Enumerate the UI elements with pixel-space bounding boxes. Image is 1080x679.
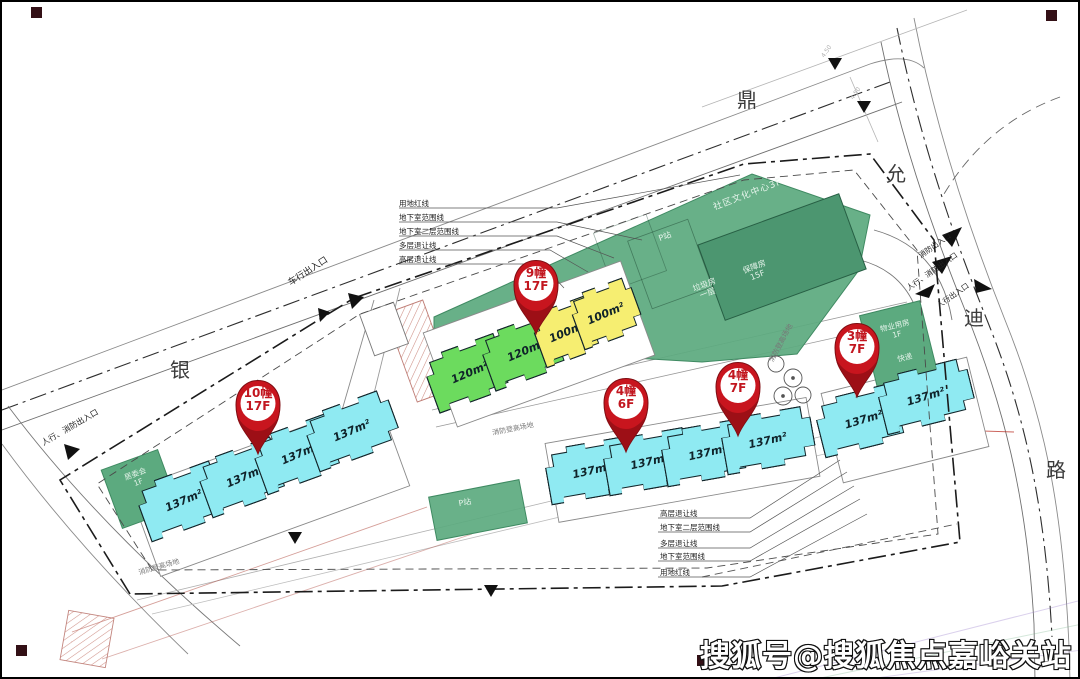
boundary-label: 地下室二层范围线 bbox=[399, 226, 459, 237]
dimension-text: 4.50 bbox=[849, 86, 862, 101]
fire-lane-label: 消防登高场地 bbox=[491, 420, 534, 438]
express-label: 快递 bbox=[889, 350, 920, 366]
p-station-south-label: P站 bbox=[449, 495, 480, 510]
road-name-southeast: 路 bbox=[1046, 454, 1066, 483]
pin-building-4a: 4幢6F bbox=[597, 374, 655, 454]
boundary-label: 地下室范围线 bbox=[399, 212, 444, 223]
boundary-label: 高层退让线 bbox=[399, 254, 437, 265]
unit-area-label: 137m² bbox=[843, 407, 884, 431]
fire-lane-label: 消防登高场地 bbox=[137, 556, 180, 577]
garbage-room-label: 垃圾房 一层 bbox=[686, 274, 726, 304]
pin-building-name: 10幢 bbox=[229, 387, 287, 400]
pin-floors: 17F bbox=[229, 400, 287, 413]
tower-137: 137m² bbox=[873, 356, 978, 435]
vehicle-entrance-label: 车行出入口 bbox=[285, 253, 330, 288]
road-name-west: 银 bbox=[170, 354, 190, 383]
boundary-label: 地下室范围线 bbox=[660, 551, 705, 562]
pin-building-name: 4幢 bbox=[597, 385, 655, 398]
boundary-label: 用地红线 bbox=[660, 567, 690, 578]
boundary-label: 多层退让线 bbox=[660, 538, 698, 549]
road-name-northeast: 允 bbox=[886, 158, 906, 187]
tower-137: 137m² bbox=[300, 387, 404, 472]
boundary-label: 用地红线 bbox=[399, 198, 429, 209]
fire-lane-label: 消防登高场地 bbox=[767, 322, 796, 364]
boundary-label: 多层退让线 bbox=[399, 240, 437, 251]
pin-floors: 17F bbox=[507, 280, 565, 293]
support-housing-label: 保障房 15F bbox=[733, 255, 779, 287]
pin-building-10: 10幢17F bbox=[229, 376, 287, 456]
gatehouse bbox=[360, 302, 409, 356]
site-plan: 137m² 137m² 137m² 137m² 137m² 137m² 137m… bbox=[0, 0, 1080, 679]
road-name-north: 鼎 bbox=[737, 84, 757, 113]
unit-area-label: 137m² bbox=[905, 384, 946, 408]
corner-marker bbox=[31, 7, 42, 18]
pin-floors: 6F bbox=[597, 398, 655, 411]
dimension-text: 4.50 bbox=[820, 44, 833, 59]
pin-building-name: 3幢 bbox=[828, 330, 886, 343]
unit-area-label: 100m² bbox=[585, 299, 626, 326]
pin-building-9: 9幢17F bbox=[507, 256, 565, 336]
pin-building-3: 3幢7F bbox=[828, 319, 886, 399]
hatched-area-sw bbox=[60, 610, 114, 667]
unit-area-label: 137m² bbox=[331, 416, 372, 443]
unit-area-label: 120m² bbox=[449, 358, 490, 385]
pin-building-name: 9幢 bbox=[507, 267, 565, 280]
corner-marker bbox=[16, 645, 27, 656]
pedestrian-fire-entrance-ne-label: 人行、消防出入口 bbox=[904, 250, 959, 293]
corner-marker bbox=[1046, 10, 1057, 21]
unit-area-label: 137m² bbox=[163, 486, 204, 513]
pin-building-name: 4幢 bbox=[709, 369, 767, 382]
east-road-edge bbox=[914, 18, 1070, 679]
road-name-east: 迪 bbox=[964, 302, 984, 331]
p-station-building bbox=[429, 480, 528, 541]
boundary-label: 地下室二层范围线 bbox=[660, 522, 720, 533]
community-center-label: 社区文化中心3F bbox=[694, 170, 802, 220]
support-housing-block bbox=[698, 194, 866, 320]
pin-floors: 7F bbox=[828, 343, 886, 356]
watermark: 搜狐号@搜狐焦点嘉峪关站 bbox=[700, 631, 1072, 675]
p-station-label: P站 bbox=[649, 227, 680, 246]
pin-building-4b: 4幢7F bbox=[709, 358, 767, 438]
pedestrian-fire-entrance-west-label: 人行、消防出入口 bbox=[40, 407, 101, 449]
pin-floors: 7F bbox=[709, 382, 767, 395]
boundary-label: 高层退让线 bbox=[660, 508, 698, 519]
